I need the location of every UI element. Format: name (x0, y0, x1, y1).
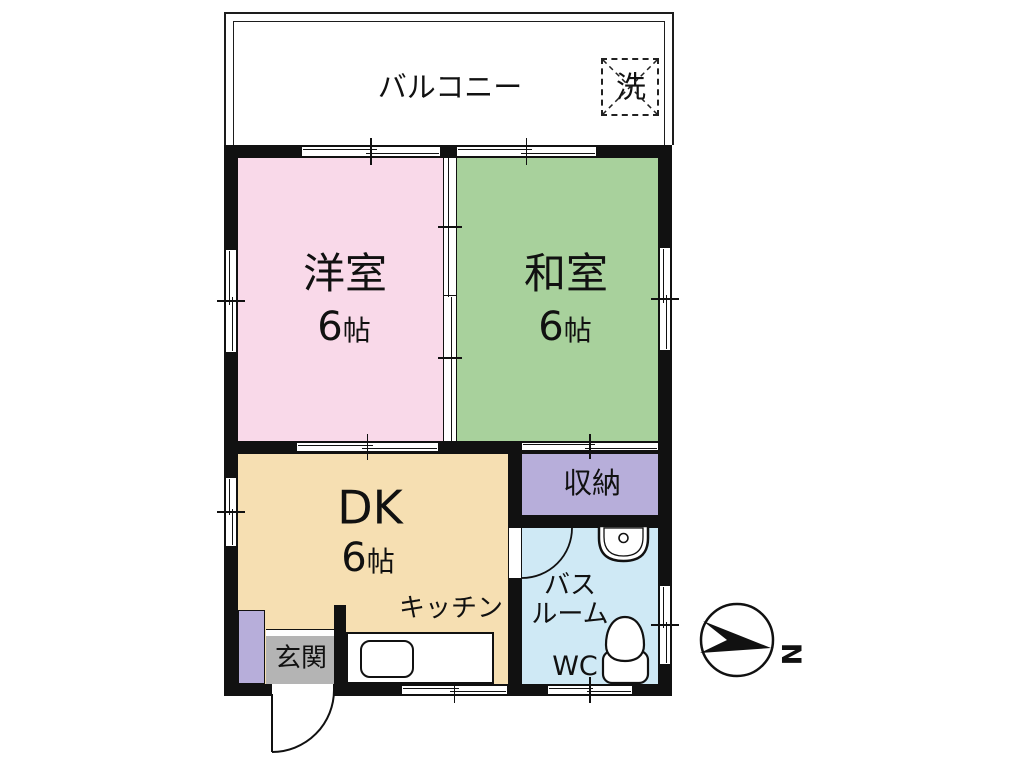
sliding-door-storage (522, 442, 658, 451)
balcony-window-west (302, 146, 440, 157)
room-japanese-size: 6帖 (538, 305, 591, 349)
room-dk-size: 6帖 (341, 536, 394, 580)
size-number: 6 (317, 304, 342, 350)
window-western-left (225, 250, 237, 352)
entrance-shoebox (238, 610, 265, 684)
balcony-label: バルコニー (378, 72, 522, 104)
size-unit: 帖 (564, 314, 592, 347)
room-western (238, 158, 443, 441)
window-japanese-right (659, 248, 671, 350)
size-number: 6 (538, 304, 563, 350)
window-wc-bottom (548, 685, 632, 695)
room-western-label: 洋室 (303, 251, 387, 297)
wall-dk-bath-lower (508, 578, 522, 684)
kitchen-sink (360, 640, 414, 678)
wall-entrance-stub (334, 605, 346, 684)
room-japanese (457, 158, 658, 441)
window-bathroom-right (659, 586, 671, 664)
window-kitchen-bottom (402, 685, 507, 695)
wall-top (224, 145, 672, 158)
room-western-size: 6帖 (317, 305, 370, 349)
bathroom-label-line2: ルーム (531, 600, 608, 629)
wall-left (224, 145, 238, 696)
bathroom-door-opening (508, 528, 522, 578)
entrance-step (266, 629, 334, 636)
size-unit: 帖 (367, 545, 395, 578)
size-number: 6 (341, 535, 366, 581)
room-japanese-label: 和室 (524, 251, 608, 297)
room-dk-label: DK (337, 483, 403, 534)
wc-label: WC (552, 652, 598, 682)
bathroom-label-line1: バス (531, 571, 608, 600)
balcony-window-east (457, 146, 596, 157)
size-unit: 帖 (343, 314, 371, 347)
entrance-door-opening (271, 684, 334, 696)
bathroom-label: バス ルーム (531, 571, 608, 628)
sliding-door-western-dk (297, 442, 438, 452)
north-label: N (775, 643, 805, 666)
wall-storage-bottom (508, 515, 672, 528)
storage-label: 収納 (563, 468, 621, 500)
kitchen-label: キッチン (399, 595, 503, 624)
washing-machine-label: 洗 (616, 72, 646, 105)
entrance-door-arc (272, 690, 334, 752)
compass-icon (700, 604, 773, 676)
window-dk-left (225, 478, 237, 546)
entrance-label: 玄関 (275, 645, 327, 674)
fusuma-divider (443, 158, 457, 441)
floor-plan: バルコニー 洗 (0, 0, 1024, 768)
